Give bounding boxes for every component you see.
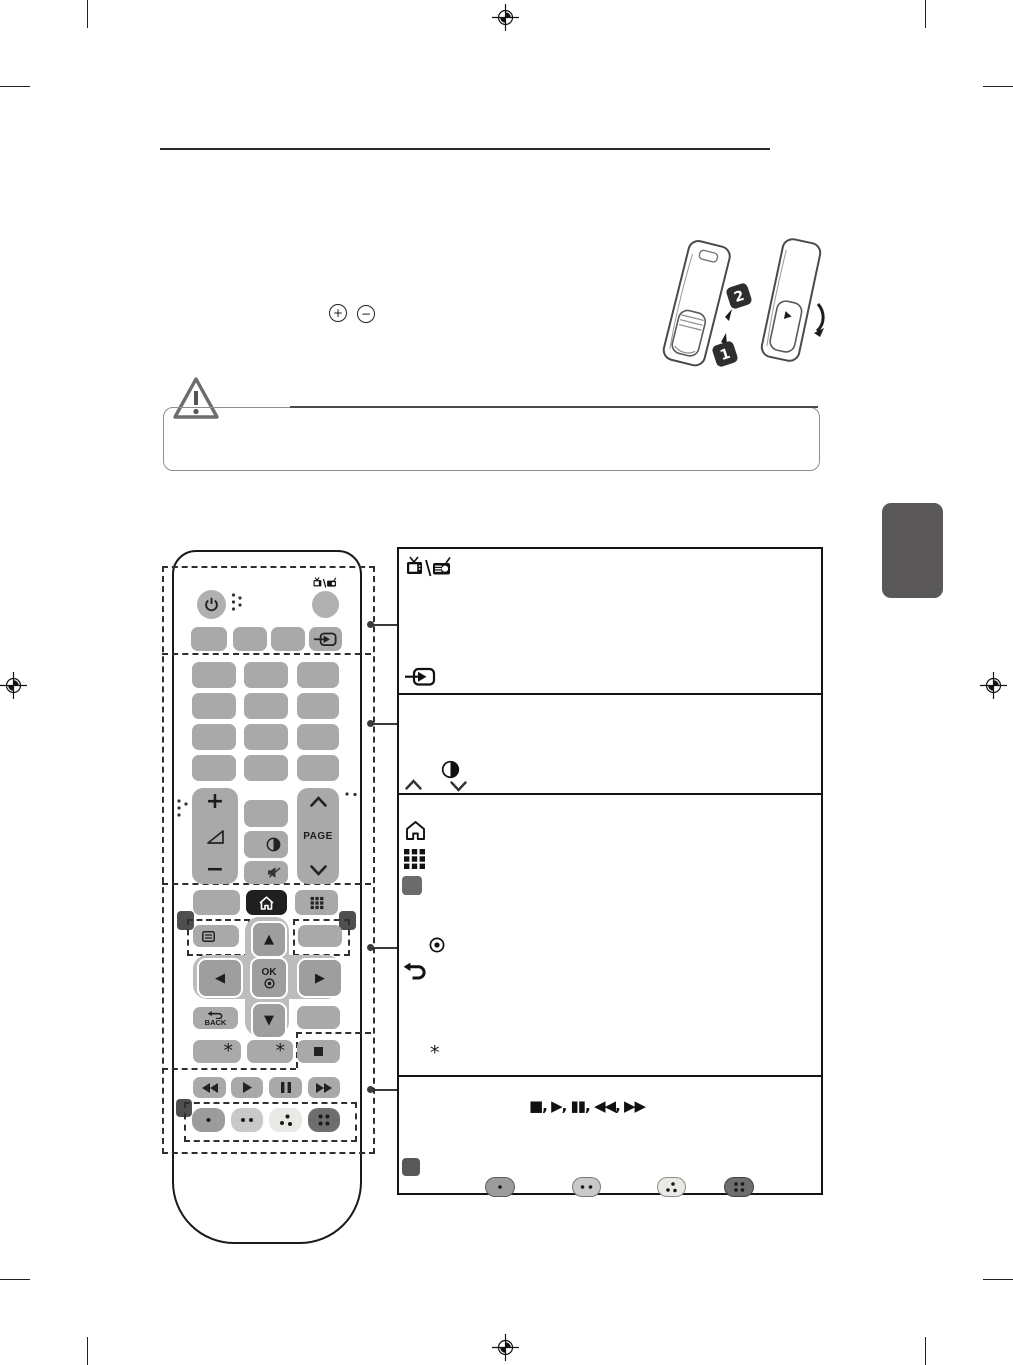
crop-mark: [87, 0, 88, 28]
left-icon: ◀: [215, 972, 225, 985]
footnote-asterisk: *: [430, 1048, 440, 1059]
record-icon: [264, 978, 275, 989]
number-button: [244, 724, 288, 750]
number-button: [297, 693, 339, 719]
dot-cluster: [176, 797, 190, 821]
nav-up-button: ▲: [251, 921, 287, 958]
table-divider: [399, 1075, 821, 1077]
apps-button: [295, 890, 338, 915]
down-icon: ▼: [264, 1014, 274, 1027]
function-table: * ■, ▶, ▮▮, ◀◀, ▶▶: [397, 547, 823, 1195]
quick-button-1: [191, 627, 227, 651]
red-color-button: [192, 1108, 225, 1132]
number-button: [192, 693, 236, 719]
manual-page: + − 2 1: [0, 0, 1013, 1365]
stop-icon: [314, 1047, 323, 1056]
power-icon: [204, 597, 219, 612]
crop-mark: [983, 86, 1013, 87]
mute-icon: [268, 867, 281, 878]
registration-mark: [492, 1334, 519, 1361]
number-button: [297, 755, 339, 781]
play-button: [231, 1077, 263, 1098]
list-button: [193, 925, 239, 947]
page-label: PAGE: [303, 831, 333, 842]
rotate-arrow: [817, 304, 823, 331]
input-icon: [313, 632, 338, 647]
stop-button: [297, 1040, 340, 1063]
up-icon: ▲: [264, 933, 274, 946]
color-dot-4: [308, 1108, 340, 1132]
number-button: [244, 693, 288, 719]
dot-button-4: [724, 1177, 754, 1197]
volume-rocker: + −: [192, 788, 238, 884]
rewind-icon: [202, 1083, 218, 1093]
ok-button: OK: [250, 957, 288, 999]
table-divider: [399, 693, 821, 695]
tv-radio-icon: [406, 556, 452, 579]
ok-label: OK: [262, 968, 277, 978]
caution-heading-rule: [290, 406, 818, 408]
quick-button-3: [271, 627, 305, 651]
volume-icon: [207, 829, 224, 844]
back-arrow-icon: [403, 962, 428, 983]
asterisk-button-right: *: [247, 1040, 293, 1063]
arrow-2: [725, 309, 732, 321]
home-icon: [258, 896, 275, 910]
crop-mark: [925, 1337, 926, 1365]
crop-mark: [0, 1279, 30, 1280]
group-divider-3-step: [296, 1032, 371, 1034]
right-icon: ▶: [315, 972, 325, 985]
pause-button: [269, 1077, 302, 1098]
page-up-icon: [310, 796, 327, 807]
dot-button-1: [485, 1177, 515, 1197]
contrast-icon: [441, 760, 460, 779]
registration-mark: [980, 672, 1007, 699]
chevron-down-icon: [450, 781, 467, 792]
play-icon: [243, 1082, 252, 1093]
color-dot-2: [231, 1108, 263, 1132]
dark-button-swatch: [402, 1158, 420, 1176]
table-divider: [399, 793, 821, 795]
home-button: [246, 890, 287, 915]
crop-mark: [87, 1337, 88, 1365]
registration-mark: [492, 4, 519, 31]
page-rocker: PAGE: [297, 788, 339, 884]
apps-grid-icon: [403, 848, 426, 870]
tv-rad-icon: [313, 577, 337, 589]
crop-mark: [983, 1279, 1013, 1280]
input-icon: [405, 667, 436, 687]
number-button: [297, 724, 339, 750]
blank-button: [193, 890, 240, 915]
input-button: [309, 627, 342, 651]
tv-rad-button: [312, 591, 339, 618]
pause-icon: [281, 1082, 291, 1093]
nav-left-button: ◀: [197, 958, 243, 998]
plus-symbol: +: [333, 307, 343, 319]
color-dot-1: [192, 1108, 225, 1132]
color-dot-3: [269, 1108, 302, 1132]
crop-mark: [925, 0, 926, 28]
rewind-button: [193, 1077, 226, 1098]
back-button: BACK: [193, 1007, 238, 1029]
blank-button: [244, 800, 288, 827]
yellow-color-button: [269, 1108, 302, 1132]
section-rule: [160, 148, 770, 150]
battery-plus-icon: +: [329, 304, 347, 322]
media-symbols: ■, ▶, ▮▮, ◀◀, ▶▶: [529, 1097, 729, 1115]
blank-button: [297, 1006, 340, 1029]
fast-forward-button: [308, 1077, 340, 1098]
registration-mark: [0, 672, 27, 699]
number-button: [244, 662, 288, 688]
crop-mark: [0, 86, 30, 87]
language-section-tab: [882, 503, 943, 598]
list-icon: [202, 931, 215, 942]
minus-symbol: −: [361, 308, 371, 320]
page-down-icon: [310, 865, 327, 876]
volume-down-label: −: [206, 860, 224, 880]
number-button: [297, 662, 339, 688]
number-button: [192, 724, 236, 750]
number-button: [244, 755, 288, 781]
nav-right-button: ▶: [297, 958, 343, 998]
asterisk-label: *: [276, 1046, 286, 1057]
asterisk-button-left: *: [193, 1040, 241, 1063]
number-button: [192, 755, 236, 781]
blue-color-button: [308, 1108, 340, 1132]
dot-cluster: [231, 592, 243, 612]
mute-button: [244, 861, 288, 884]
volume-up-label: +: [206, 792, 224, 812]
record-icon: [429, 937, 445, 953]
fast-forward-icon: [316, 1083, 332, 1093]
contrast-icon: [266, 837, 281, 852]
dot-button-2: [572, 1177, 601, 1197]
quick-button-2: [233, 627, 267, 651]
green-color-button: [231, 1108, 263, 1132]
caution-box: [163, 407, 820, 471]
callout-badge-1: 1: [711, 340, 739, 368]
battery-minus-icon: −: [357, 305, 375, 323]
number-button: [192, 662, 236, 688]
callout-badge-2: 2: [725, 282, 753, 310]
battery-installation-illustration: 2 1: [652, 238, 852, 386]
home-icon: [404, 820, 427, 841]
asterisk-label: *: [224, 1046, 234, 1057]
dot-cluster: [344, 790, 360, 798]
dot-button-3: [657, 1177, 686, 1197]
nav-down-button: ▼: [251, 1002, 287, 1039]
apps-icon: [310, 896, 324, 910]
chevron-up-icon: [405, 779, 422, 790]
gray-button-swatch: [402, 876, 422, 895]
back-label: BACK: [205, 1019, 227, 1027]
blank-button: [298, 925, 342, 947]
contrast-button: [244, 831, 288, 858]
group-divider-1: [162, 653, 371, 655]
group-divider-3: [162, 1068, 296, 1070]
power-button: [197, 590, 226, 619]
